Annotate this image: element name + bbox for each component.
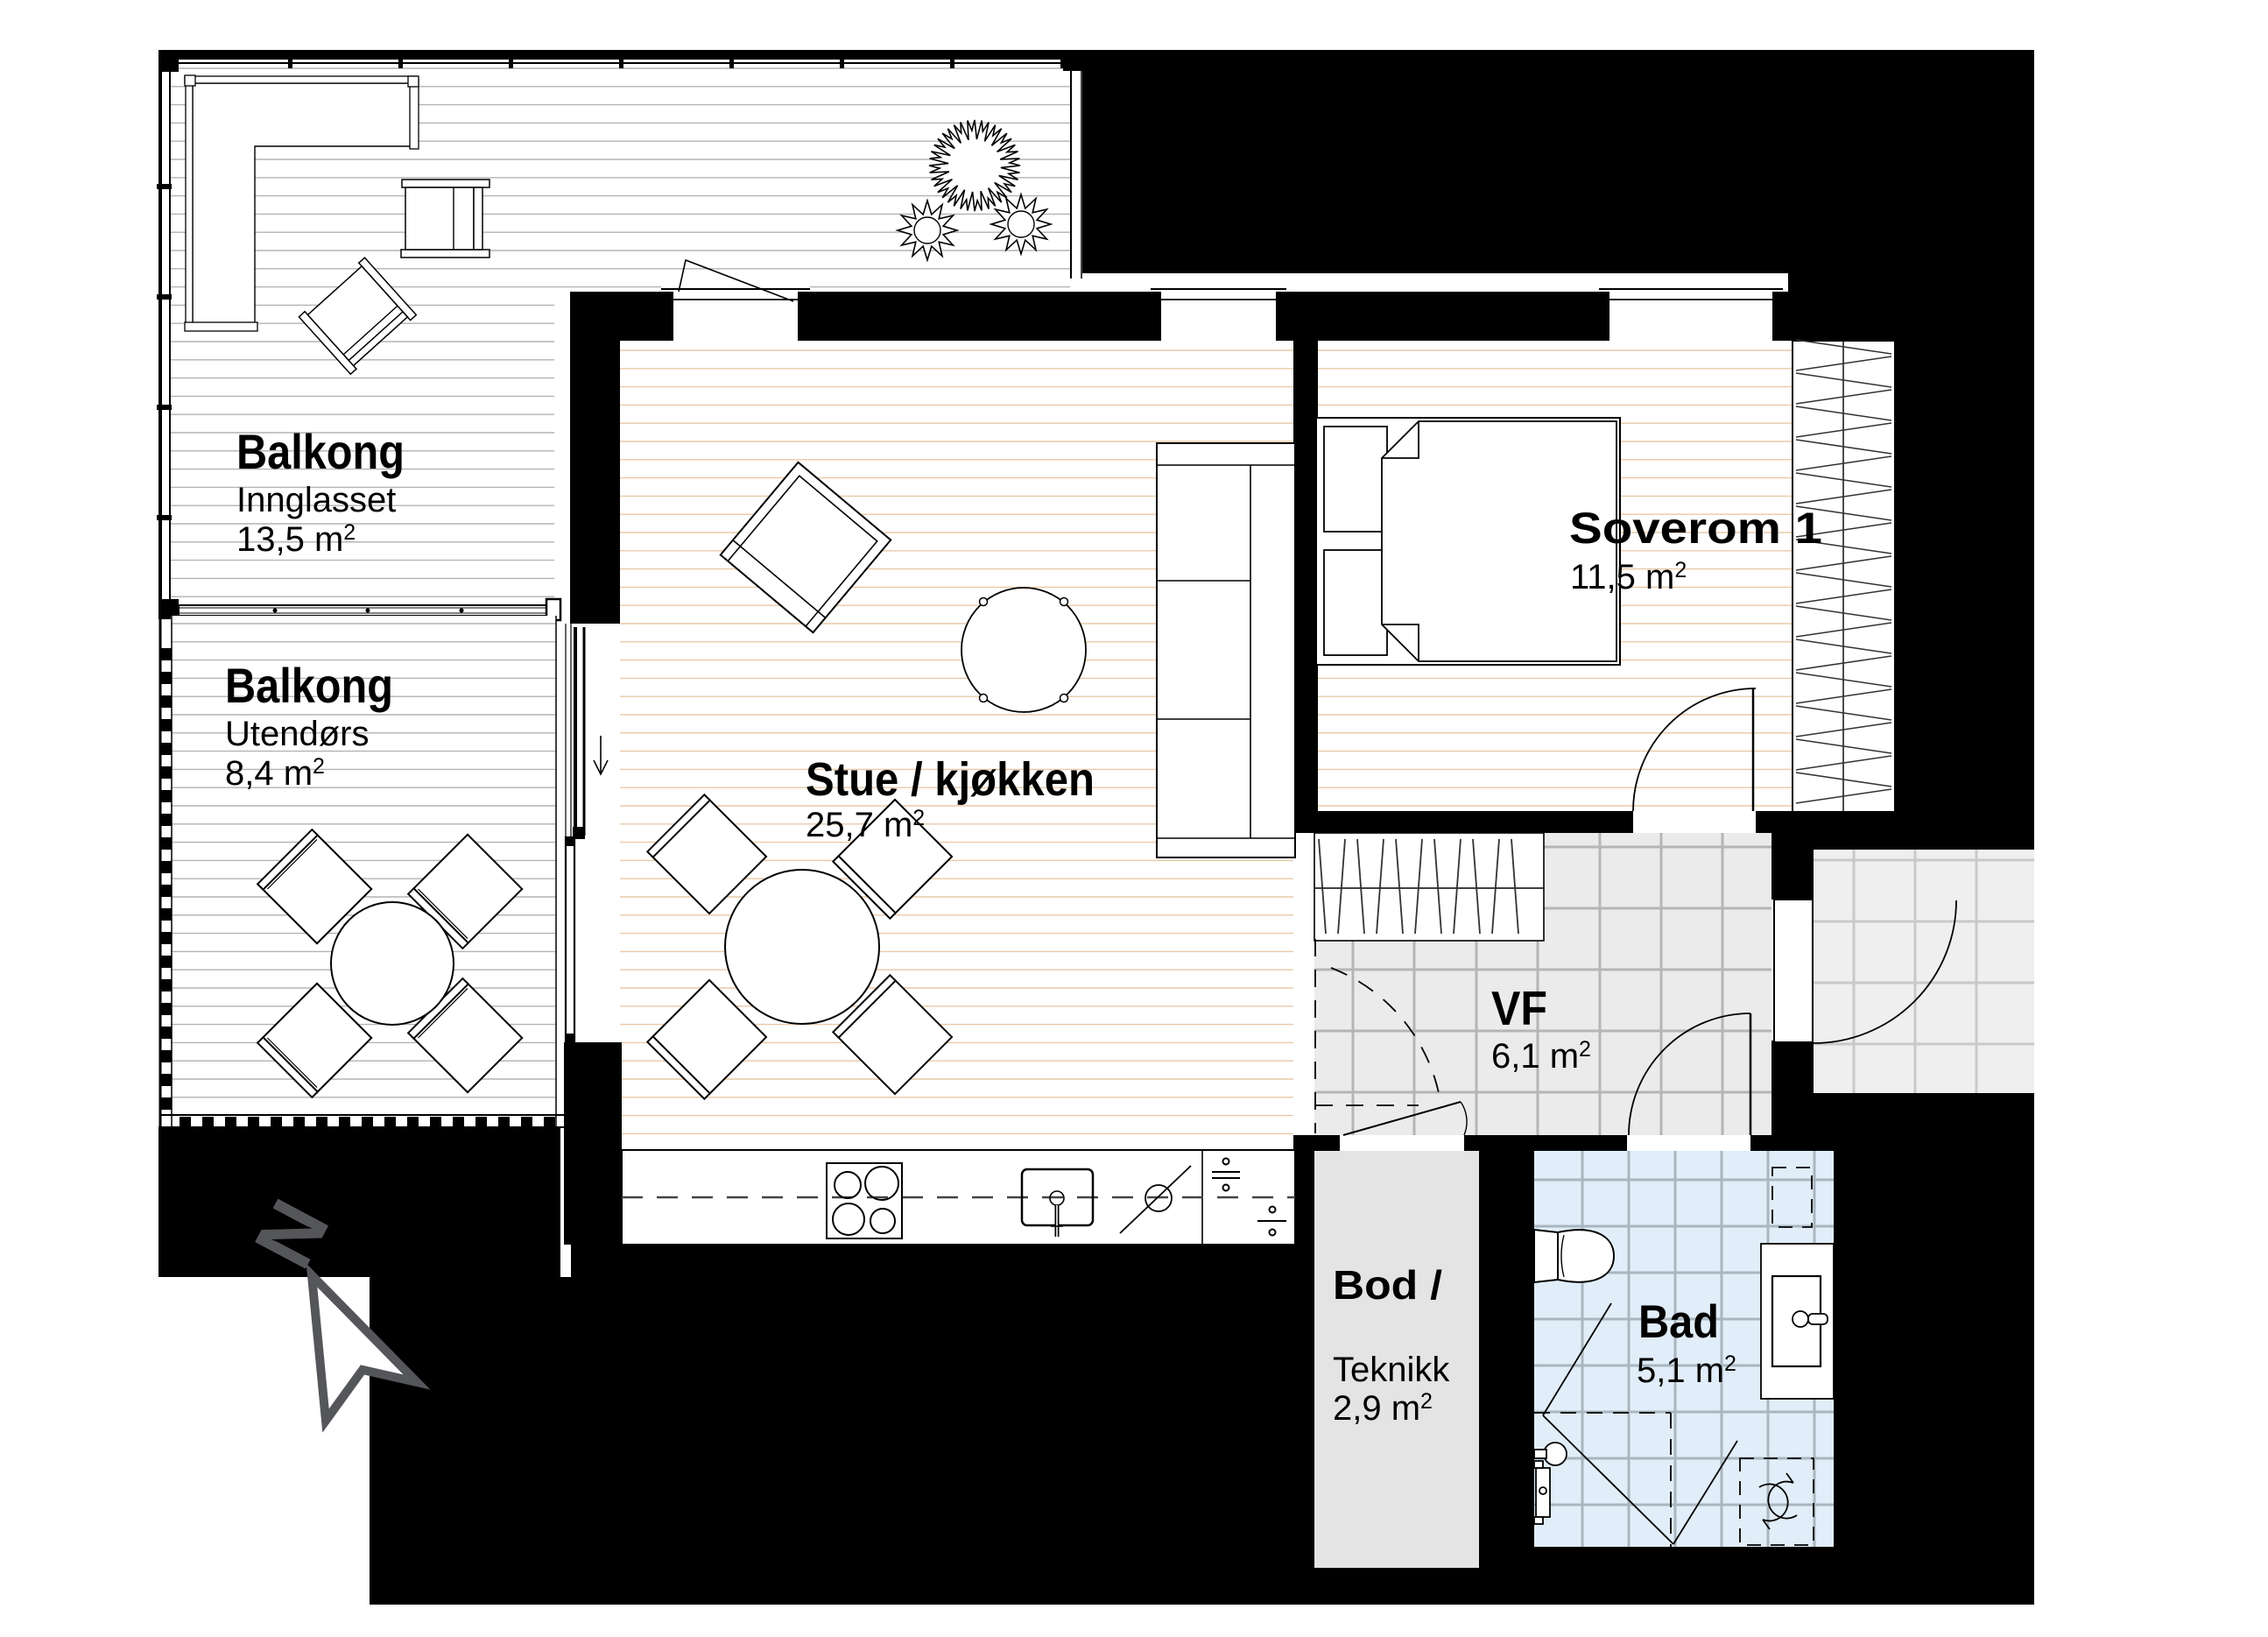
svg-text:13,5 m2: 13,5 m2 [236,520,356,559]
svg-text:Innglasset: Innglasset [236,481,396,519]
svg-text:Utendørs: Utendørs [225,715,370,753]
svg-text:25,7 m2: 25,7 m2 [806,806,925,844]
svg-text:2,9 m2: 2,9 m2 [1333,1389,1433,1428]
svg-text:8,4 m2: 8,4 m2 [225,754,325,793]
svg-text:11,5 m2: 11,5 m2 [1570,558,1687,596]
svg-text:Stue / kjøkken: Stue / kjøkken [806,753,1095,806]
svg-text:VF: VF [1491,981,1547,1035]
svg-text:Balkong: Balkong [225,658,393,713]
svg-text:5,1 m2: 5,1 m2 [1637,1351,1736,1390]
svg-text:Teknikk: Teknikk [1333,1351,1450,1389]
svg-text:Balkong: Balkong [236,424,405,479]
svg-text:Soverom 1: Soverom 1 [1569,504,1822,553]
svg-text:Bod /: Bod / [1333,1262,1442,1308]
svg-text:6,1 m2: 6,1 m2 [1491,1037,1591,1076]
svg-text:Bad: Bad [1638,1296,1719,1348]
